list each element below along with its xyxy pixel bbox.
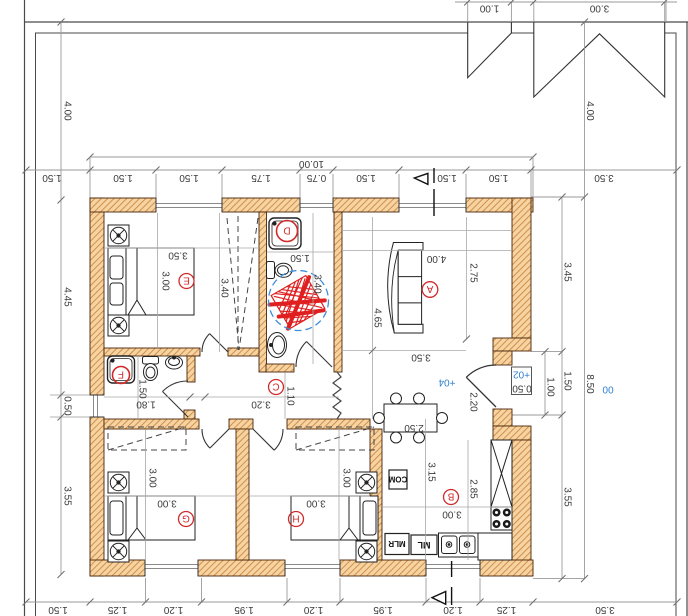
svg-text:3.00: 3.00 [157,497,177,508]
svg-text:1.80: 1.80 [136,398,156,409]
svg-text:1.75: 1.75 [251,172,271,183]
svg-text:0.75: 0.75 [306,172,326,183]
svg-text:1.50: 1.50 [437,172,457,183]
svg-text:D: D [283,224,290,235]
svg-text:3.20: 3.20 [251,398,271,409]
svg-text:3.40: 3.40 [311,274,322,294]
svg-text:3.50: 3.50 [595,604,615,615]
svg-text:0.50: 0.50 [61,396,72,416]
svg-text:3.00: 3.00 [442,508,462,519]
svg-text:00: 00 [602,383,614,394]
svg-text:3.00: 3.00 [340,468,351,488]
svg-text:1.00: 1.00 [544,377,555,397]
svg-text:1.20: 1.20 [163,604,183,615]
svg-text:1.50: 1.50 [48,604,68,615]
svg-text:3.15: 3.15 [425,462,436,482]
svg-text:F: F [118,368,124,379]
svg-text:1.50: 1.50 [113,172,133,183]
svg-text:+02: +02 [513,368,530,379]
svg-text:1.50: 1.50 [136,379,147,399]
svg-text:1.50: 1.50 [42,172,62,183]
svg-text:G: G [182,512,190,523]
svg-text:1.50: 1.50 [356,172,376,183]
svg-text:A: A [426,283,433,294]
svg-text:E: E [183,274,190,285]
svg-text:1.25: 1.25 [496,604,516,615]
svg-text:1.50: 1.50 [290,252,310,263]
svg-text:2.20: 2.20 [467,392,478,412]
svg-text:3.00: 3.00 [306,497,326,508]
svg-text:1.00: 1.00 [479,2,499,13]
svg-text:3.55: 3.55 [61,486,72,506]
svg-text:2.85: 2.85 [467,479,478,499]
svg-text:4.00: 4.00 [584,101,595,121]
svg-text:1.10: 1.10 [284,386,295,406]
svg-text:0.50: 0.50 [512,382,532,393]
svg-text:3.55: 3.55 [561,487,572,507]
svg-text:1.20: 1.20 [303,604,323,615]
svg-text:1.50: 1.50 [488,172,508,183]
svg-text:1.50: 1.50 [561,371,572,391]
svg-text:C: C [272,380,279,391]
svg-text:4.65: 4.65 [371,308,382,328]
svg-text:3.45: 3.45 [561,262,572,282]
svg-text:4.00: 4.00 [426,253,446,264]
svg-text:3.00: 3.00 [146,468,157,488]
svg-text:2.50: 2.50 [404,422,424,433]
svg-text:3.00: 3.00 [589,2,609,13]
svg-text:3.50: 3.50 [168,249,188,260]
svg-text:1.50: 1.50 [179,172,199,183]
svg-text:H: H [292,512,299,523]
svg-text:+04: +04 [438,376,455,387]
svg-text:3.50: 3.50 [594,172,614,183]
svg-text:3.50: 3.50 [411,351,431,362]
svg-text:1.20: 1.20 [443,604,463,615]
svg-text:3.40: 3.40 [218,278,229,298]
svg-text:3.00: 3.00 [159,271,170,291]
svg-text:1.95: 1.95 [373,604,393,615]
svg-text:2.75: 2.75 [467,263,478,283]
svg-text:ML: ML [417,540,430,550]
svg-text:1.25: 1.25 [107,604,127,615]
svg-text:B: B [447,490,454,501]
svg-text:4.00: 4.00 [61,101,72,121]
svg-text:4.45: 4.45 [61,287,72,307]
svg-text:8.50: 8.50 [584,374,595,394]
svg-text:MLR: MLR [388,539,406,548]
svg-text:1.95: 1.95 [234,604,254,615]
svg-text:COM: COM [388,474,407,483]
